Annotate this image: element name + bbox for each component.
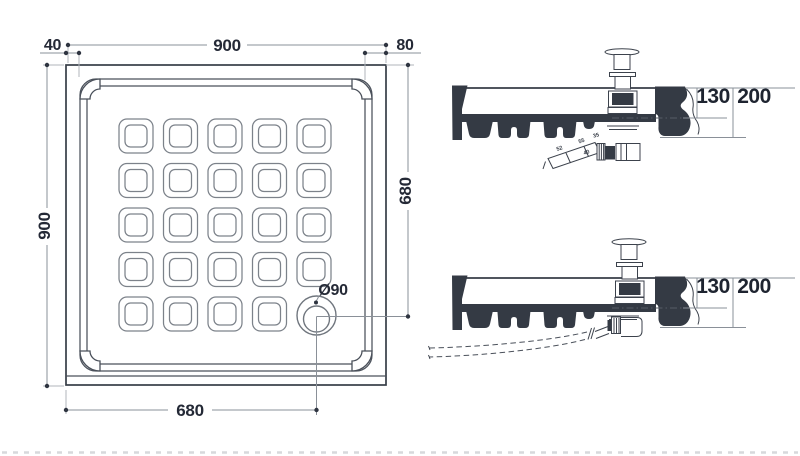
dim-depth-bottom: 130	[696, 275, 730, 298]
grip-square-inner	[214, 303, 236, 325]
grip-square	[119, 164, 153, 198]
drain-diameter-label: Ø90	[318, 282, 348, 299]
grip-square	[297, 119, 331, 153]
grip-square-inner	[303, 125, 325, 147]
grip-square	[297, 164, 331, 198]
grip-square	[253, 297, 287, 331]
grip-square-inner	[259, 214, 281, 236]
dim-height-total: 900	[35, 212, 54, 239]
grip-square	[164, 164, 198, 198]
grip-square-inner	[170, 125, 192, 147]
section-view-bottom: 130 200	[429, 239, 796, 359]
grip-square	[164, 297, 198, 331]
grip-square	[164, 119, 198, 153]
drawing-svg: Ø90 900 40 80 900	[0, 0, 800, 456]
grip-square	[164, 253, 198, 287]
grip-square	[208, 253, 242, 287]
grip-square	[208, 297, 242, 331]
rim-corner-wedges	[80, 79, 372, 371]
grip-square-inner	[303, 259, 325, 281]
grip-square-inner	[259, 259, 281, 281]
grip-square-grid	[119, 119, 331, 331]
grip-square-inner	[170, 259, 192, 281]
tray-outline	[66, 65, 386, 385]
grip-square-inner	[214, 259, 236, 281]
grip-square	[253, 119, 287, 153]
dim-rim-left: 40	[44, 37, 62, 54]
basin-rim-outer	[80, 79, 372, 371]
grip-square	[119, 208, 153, 242]
grip-square-inner	[125, 170, 147, 192]
grip-square-inner	[214, 125, 236, 147]
trap-dim-seg-a: 52	[556, 145, 564, 153]
drain-plan: Ø90	[297, 282, 409, 415]
dim-top: 900 40 80	[40, 36, 421, 80]
section-view-top: 52 55 40 35 130 200	[452, 49, 795, 169]
trap-detail: 52 55 40 35	[543, 132, 640, 169]
grip-square	[253, 208, 287, 242]
trap-dim-nut: 35	[593, 132, 600, 139]
grip-square-inner	[125, 214, 147, 236]
grip-square-inner	[125, 259, 147, 281]
shower-tray-technical-drawing: Ø90 900 40 80 900	[0, 0, 800, 456]
dim-bottom: 680	[64, 390, 319, 420]
grip-square-inner	[259, 303, 281, 325]
grip-square	[208, 119, 242, 153]
dim-height-top: 200	[737, 85, 771, 108]
plan-view: Ø90 900 40 80 900	[35, 36, 421, 420]
trap-dim-seg-b: 55	[578, 138, 586, 146]
grip-square-inner	[214, 214, 236, 236]
grip-square-inner	[259, 125, 281, 147]
basin-rim-inner	[87, 86, 365, 364]
grip-square-inner	[303, 170, 325, 192]
grip-square	[208, 164, 242, 198]
grip-square-inner	[259, 170, 281, 192]
grip-square-inner	[303, 214, 325, 236]
dim-drain-from-top: 680	[396, 177, 415, 204]
dim-rim-right: 80	[396, 37, 414, 54]
grip-square	[119, 119, 153, 153]
grip-square	[208, 208, 242, 242]
grip-square-inner	[170, 170, 192, 192]
grip-square-inner	[170, 303, 192, 325]
grip-square-inner	[170, 214, 192, 236]
grip-square-inner	[214, 170, 236, 192]
grip-square	[119, 253, 153, 287]
dim-width-total: 900	[213, 36, 240, 55]
grip-square	[297, 208, 331, 242]
grip-square-inner	[125, 303, 147, 325]
grip-square	[119, 297, 153, 331]
grip-square	[253, 164, 287, 198]
grip-square	[253, 253, 287, 287]
grip-square	[164, 208, 198, 242]
dim-height-bottom: 200	[737, 275, 771, 298]
dim-drain-from-left: 680	[176, 401, 203, 420]
grip-square-inner	[125, 125, 147, 147]
dim-left: 900	[35, 63, 64, 388]
dim-right: 680	[386, 63, 415, 319]
dim-depth-top: 130	[696, 85, 730, 108]
